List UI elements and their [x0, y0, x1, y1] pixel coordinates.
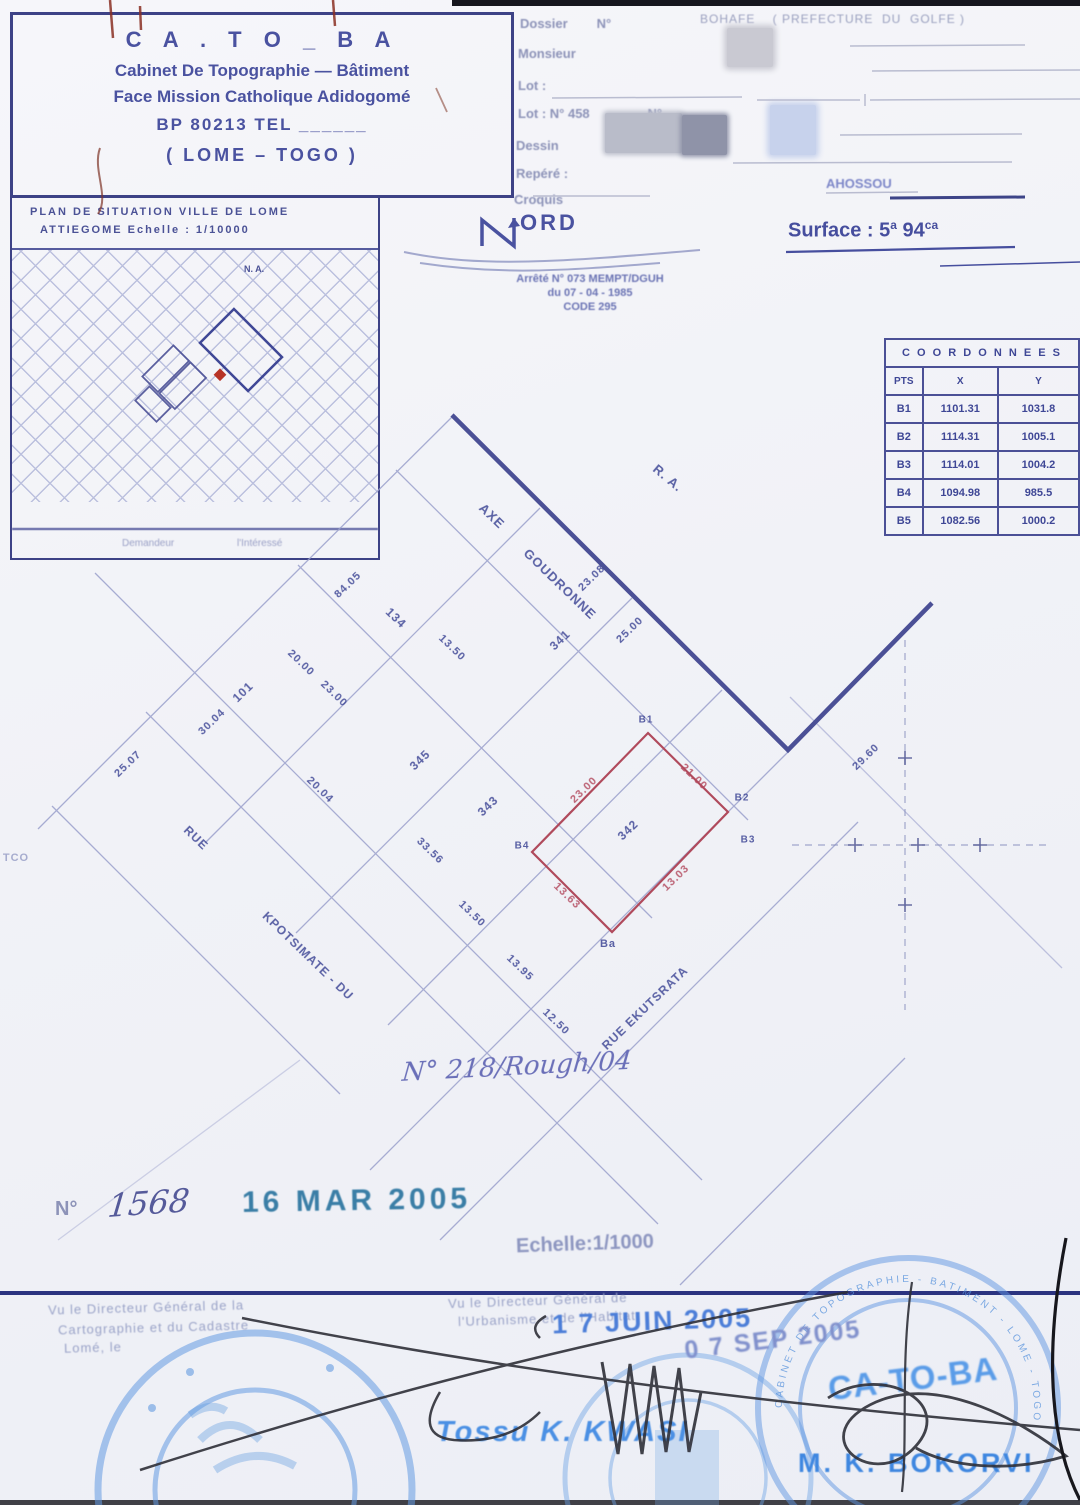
arrete-line3: CODE 295: [455, 300, 725, 314]
pt-y: 1005.1: [998, 423, 1079, 451]
scan-top-edge: [452, 0, 1080, 6]
catoba-stamp-center-text: CA-TO-BA: [816, 1349, 1009, 1410]
pt-id: B5: [885, 507, 923, 535]
firm-city: ( LOME – TOGO ): [13, 145, 511, 166]
plan-label: Ba: [600, 938, 616, 950]
plan-label: 20.04: [304, 774, 336, 805]
coords-header-x: X: [923, 367, 998, 395]
plan-label: AXE: [476, 500, 508, 531]
redaction-block: [605, 113, 682, 153]
prefecture-line: BOHAFE ( PREFECTURE DU GOLFE ): [700, 12, 965, 26]
plan-label: 25.00: [614, 614, 646, 645]
plan-label: 30.04: [196, 706, 228, 737]
street-grid-sketch: [12, 250, 378, 502]
surveyor-letterhead-box: C A . T O _ B A Cabinet De Topographie —…: [10, 12, 514, 198]
coords-row: B51082.561000.2: [885, 507, 1079, 535]
situation-map-header: PLAN DE SITUATION VILLE DE LOME ATTIEGOM…: [12, 198, 378, 250]
situation-map-footer: Demandeur l'Intéressé: [12, 528, 378, 558]
plan-label: 101: [230, 679, 256, 705]
plan-label: 345: [407, 747, 433, 773]
plan-label: B1: [639, 715, 654, 726]
plan-label: 341: [547, 627, 573, 653]
coords-row: B41094.98985.5: [885, 479, 1079, 507]
surface-area-value: Surface : 5a 94ca: [788, 218, 938, 243]
coords-row: B31114.011004.2: [885, 451, 1079, 479]
pt-y: 1000.2: [998, 507, 1079, 535]
plan-label: 33.56: [414, 835, 446, 866]
arrete-reference: Arrêté N° 073 MEMPT/DGUH du 07 - 04 - 19…: [455, 272, 725, 314]
north-label: ORD: [520, 210, 578, 236]
form-repere-label: Repéré :: [516, 166, 568, 181]
form-ahossou-text: AHOSSOU: [826, 176, 892, 191]
form-monsieur-label: Monsieur: [518, 46, 576, 61]
plan-label: 25.07: [112, 748, 144, 779]
redaction-block: [682, 115, 727, 155]
pt-x: 1094.98: [923, 479, 998, 507]
firm-name: C A . T O _ B A: [13, 27, 511, 53]
form-dessin-label: Dessin: [516, 138, 559, 153]
plan-label: R. A.: [650, 461, 686, 494]
arrete-line2: du 07 - 04 - 1985: [455, 286, 725, 300]
arrete-line1: Arrêté N° 073 MEMPT/DGUH: [455, 272, 725, 286]
form-lot-label: Lot :: [518, 78, 546, 93]
scan-bottom-edge: [0, 1500, 1080, 1505]
firm-address: Face Mission Catholique Adidogomé: [13, 87, 511, 107]
situation-map: PLAN DE SITUATION VILLE DE LOME ATTIEGOM…: [10, 196, 380, 560]
plan-label: 342: [615, 817, 641, 843]
pt-id: B1: [885, 395, 923, 423]
pt-y: 1004.2: [998, 451, 1079, 479]
left-approval-line2: Cartographie et du Cadastre: [58, 1318, 249, 1338]
coords-title: C O O R D O N N E E S: [885, 339, 1079, 367]
plan-label: B4: [515, 841, 530, 852]
coords-row: B21114.311005.1: [885, 423, 1079, 451]
plan-label: 12.50: [540, 1006, 572, 1037]
plan-label: 13.50: [436, 632, 468, 663]
registration-date-stamp: 16 MAR 2005: [242, 1182, 472, 1220]
handwritten-file-reference: N° 218/Rough/04: [401, 1046, 633, 1088]
firm-subtitle: Cabinet De Topographie — Bâtiment: [13, 61, 511, 81]
plan-label: RUE: [181, 823, 211, 853]
plan-label: 20.00: [285, 647, 317, 678]
redaction-block: [770, 105, 816, 155]
plan-scale: Echelle:1/1000: [516, 1231, 655, 1259]
firm-bp-tel: BP 80213 TEL ______: [13, 115, 511, 135]
surface-prefix: Surface : 5: [788, 220, 890, 242]
coords-header-pts: PTS: [885, 367, 923, 395]
coords-header-y: Y: [998, 367, 1079, 395]
redaction-block: [727, 28, 773, 67]
plan-label: 23.08: [576, 562, 608, 593]
situation-map-title: PLAN DE SITUATION VILLE DE LOME: [30, 206, 378, 218]
pt-x: 1114.31: [923, 423, 998, 451]
plan-label: KPOTSIMATE - DU: [260, 909, 357, 1003]
signatory-name-center: Tossu K. KWASI: [436, 1416, 689, 1449]
plan-label: B3: [741, 835, 756, 846]
pt-x: 1101.31: [923, 395, 998, 423]
surface-unit-ca: ca: [925, 218, 938, 232]
scanned-survey-document: C A . T O _ B A Cabinet De Topographie —…: [0, 0, 1080, 1505]
plan-label: 23.00: [318, 678, 350, 709]
surface-centiares: 94: [897, 220, 925, 242]
coordinates-table: C O O R D O N N E E S PTS X Y B11101.311…: [884, 338, 1080, 536]
pt-id: B4: [885, 479, 923, 507]
plan-label: 13.03: [660, 862, 692, 893]
coords-row: B11101.311031.8: [885, 395, 1079, 423]
surface-unit-a: a: [890, 218, 897, 232]
signatory-name-right: M. K. BOKORVI: [798, 1448, 1035, 1479]
plan-label: 13.63: [551, 880, 583, 911]
plan-label: 29.60: [850, 741, 882, 772]
doc-number-value: 1568: [106, 1181, 191, 1225]
plan-label: 23.00: [568, 774, 600, 805]
plan-label: 343: [475, 793, 501, 819]
doc-number-label: N°: [55, 1198, 77, 1221]
situation-map-scale: ATTIEGOME Echelle : 1/10000: [40, 224, 378, 236]
left-approval-line1: Vu le Directeur Général de la: [48, 1297, 244, 1317]
pt-y: 985.5: [998, 479, 1079, 507]
plan-label: 13.95: [504, 952, 536, 983]
map-footer-left: Demandeur: [122, 538, 174, 549]
plan-label: 84.05: [332, 569, 364, 600]
pt-id: B2: [885, 423, 923, 451]
plan-label: 13.50: [456, 898, 488, 929]
pt-y: 1031.8: [998, 395, 1079, 423]
form-dossier-label: Dossier N°: [520, 16, 611, 31]
map-block-label: N. A.: [244, 264, 264, 274]
map-footer-right: l'Intéressé: [237, 538, 282, 549]
plan-label: 134: [383, 605, 409, 631]
plan-label: TCO: [3, 852, 29, 864]
left-approval-line3: Lomé, le: [64, 1339, 122, 1356]
plan-label: 21.00: [678, 761, 710, 792]
pt-id: B3: [885, 451, 923, 479]
pt-x: 1082.56: [923, 507, 998, 535]
pt-x: 1114.01: [923, 451, 998, 479]
plan-label: B2: [735, 793, 750, 804]
page-curl-shadow: [1053, 1238, 1080, 1500]
form-croquis-label: Croquis: [514, 192, 563, 207]
plan-label: RUE EKUTSRATA: [599, 963, 691, 1052]
